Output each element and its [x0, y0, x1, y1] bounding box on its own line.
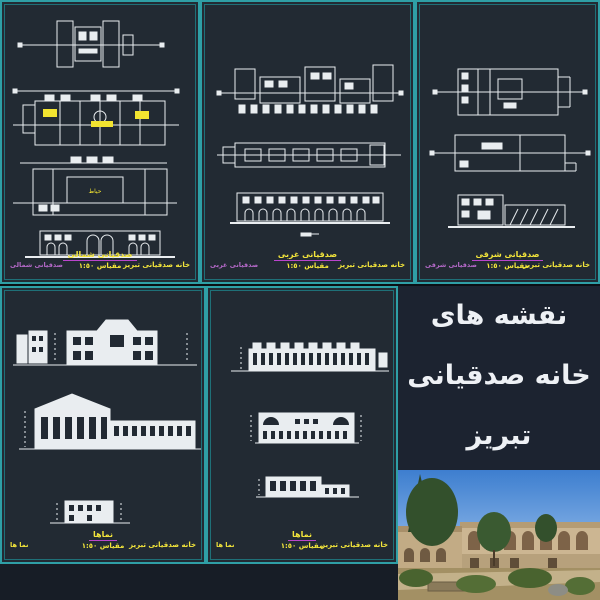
- poster-collage: حیاط صدقیانی شمالی مقياس ١:٥٠ خانه صدقیا…: [0, 0, 600, 600]
- sheet-west-frame: صدقیانی غربی مقياس ١:٥٠ خانه صدقیانی تبر…: [204, 4, 411, 280]
- plan-room-label: حیاط: [89, 188, 102, 195]
- poster-title-line-3: تبریز: [398, 406, 600, 466]
- sheet-corner-note: صدقیانی غربی: [210, 261, 258, 269]
- bottom-margin-strip: [0, 564, 398, 600]
- sheet-project-name: خانه صدقیانی تبریز: [523, 261, 590, 269]
- sheet-title: نماها: [288, 530, 316, 541]
- sheet-corner-note: نما ها: [10, 541, 28, 549]
- sheet-north-frame: حیاط صدقیانی شمالی مقياس ١:٥٠ خانه صدقیا…: [4, 4, 196, 280]
- elevations-1-drawing: [5, 291, 202, 560]
- east-plans-drawing: [420, 5, 596, 280]
- sheet-corner-note: صدقیانی شرقی: [425, 261, 477, 269]
- courtyard-photo: [398, 470, 600, 600]
- west-plans-drawing: [205, 5, 411, 280]
- sheet-north-plans: حیاط صدقیانی شمالی مقياس ١:٥٠ خانه صدقیا…: [0, 0, 200, 284]
- sheet-title: صدقیانی شرقی: [472, 250, 544, 261]
- sheet-elevations-2: نماها مقياس ١:٥٠ خانه صدقیانی تبریز نما …: [206, 286, 398, 564]
- sheet-corner-note: صدقیانی شمالی: [10, 261, 63, 269]
- sheet-east-frame: صدقیانی شرقی مقياس ١:٥٠ خانه صدقیانی تبر…: [419, 4, 596, 280]
- poster-title-line-2: خانه صدقیانی: [398, 346, 600, 406]
- elevations-2-drawing: [211, 291, 394, 560]
- sheet-project-name: خانه صدقیانی تبریز: [123, 261, 190, 269]
- sheet-title: صدقیانی شمالی: [63, 250, 136, 261]
- north-plans-drawing: حیاط: [5, 5, 196, 280]
- poster-title-block: نقشه های خانه صدقیانی تبریز: [398, 286, 600, 470]
- courtyard-photo-graphic: [398, 470, 600, 600]
- sheet-project-name: خانه صدقیانی تبریز: [338, 261, 405, 269]
- sheet-project-name: خانه صدقیانی تبریز: [321, 541, 388, 549]
- sheet-project-name: خانه صدقیانی تبریز: [129, 541, 196, 549]
- sheet-title: نماها: [89, 530, 117, 541]
- sheet-east-plans: صدقیانی شرقی مقياس ١:٥٠ خانه صدقیانی تبر…: [415, 0, 600, 284]
- sheet-title: صدقیانی غربی: [274, 250, 341, 261]
- sheet-corner-note: نما ها: [216, 541, 234, 549]
- sheet-elevations-1: نماها مقياس ١:٥٠ خانه صدقیانی تبریز نما …: [0, 286, 206, 564]
- sheet-west-plans: صدقیانی غربی مقياس ١:٥٠ خانه صدقیانی تبر…: [200, 0, 415, 284]
- poster-title-line-1: نقشه های: [398, 286, 600, 346]
- sheet-elevations-2-frame: نماها مقياس ١:٥٠ خانه صدقیانی تبریز نما …: [210, 290, 394, 560]
- sheet-elevations-1-frame: نماها مقياس ١:٥٠ خانه صدقیانی تبریز نما …: [4, 290, 202, 560]
